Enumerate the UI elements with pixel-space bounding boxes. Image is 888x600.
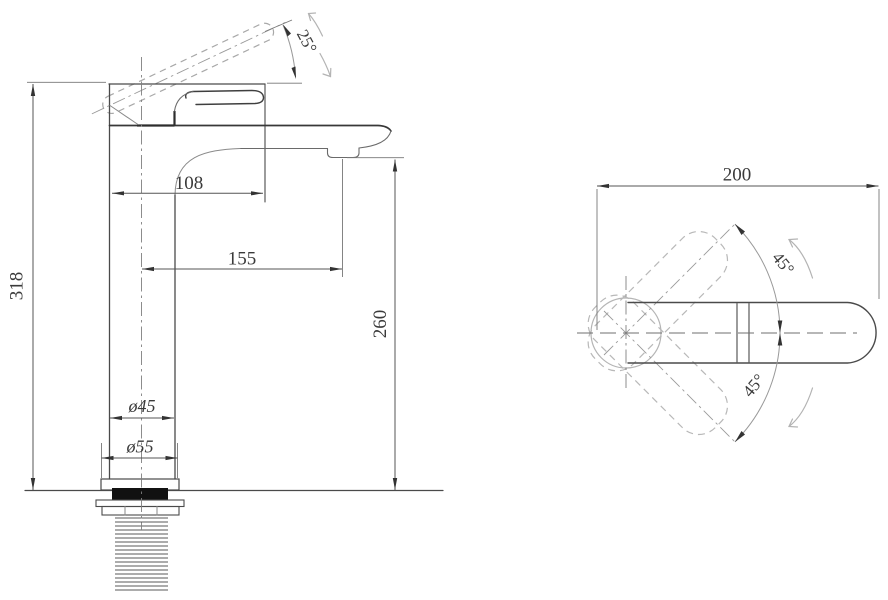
mounting-gasket xyxy=(112,488,168,500)
raised-handle-phantom xyxy=(88,14,289,122)
lock-nut-facets xyxy=(125,507,157,516)
technical-drawing-canvas: 25° 318 108 155 xyxy=(0,0,888,600)
body-diameter-label: ø45 xyxy=(128,396,156,416)
swivel-arrow-mid-lower xyxy=(778,333,783,346)
dim-handle-angle: 25° xyxy=(265,13,331,83)
height-arrow-bottom xyxy=(31,478,35,490)
spout-tip-face xyxy=(359,131,391,148)
reach108-arrow-right xyxy=(251,191,263,195)
spout-reach-label: 155 xyxy=(228,249,257,270)
lock-nut-body xyxy=(102,507,179,516)
height260-arrow-top xyxy=(393,160,397,172)
handle-angle-label: 25° xyxy=(293,26,321,56)
total-height-label: 318 xyxy=(7,272,28,301)
faucet-drawing-svg: 25° 318 108 155 xyxy=(0,0,888,600)
reach155-arrow-left xyxy=(142,267,154,271)
dim-overall-length: 200 xyxy=(597,165,879,331)
aerator xyxy=(328,148,360,158)
base-diameter-label: ø55 xyxy=(126,437,154,457)
angle-arrow-up xyxy=(283,25,291,37)
angle-arrow-down xyxy=(292,67,297,80)
swivel-lower-label: 45° xyxy=(739,370,769,400)
overall-length-label: 200 xyxy=(723,165,752,186)
spout-height-label: 260 xyxy=(370,310,391,339)
angle-ext-top xyxy=(265,20,292,32)
side-view: 25° 318 108 155 xyxy=(7,13,444,590)
dim-spout-height: 260 xyxy=(347,158,404,490)
handle-base-step xyxy=(137,111,175,126)
swivel-arrow-mid-upper xyxy=(778,321,783,334)
lock-nut-flange xyxy=(96,500,184,507)
swivel-direction-curve-down xyxy=(789,388,813,427)
lift-direction-curve-down xyxy=(320,54,331,77)
dim-base-diameter: ø55 xyxy=(102,437,178,479)
dia45-arrow-right xyxy=(162,416,174,420)
dia55-arrow-right xyxy=(166,456,178,460)
spout-top-reach-label: 108 xyxy=(175,173,204,194)
dia55-arrow-left xyxy=(102,456,114,460)
dim-body-diameter: ø45 xyxy=(110,396,174,420)
height260-arrow-bottom xyxy=(393,478,397,490)
swung-axis-lower xyxy=(604,311,736,443)
length200-arrow-left xyxy=(597,184,609,188)
swung-axis-upper xyxy=(604,223,736,355)
height-arrow-top xyxy=(31,84,35,96)
swivel-upper-label: 45° xyxy=(768,248,798,278)
length200-arrow-right xyxy=(867,184,879,188)
dim-total-height: 318 xyxy=(7,82,107,490)
reach155-arrow-right xyxy=(330,267,342,271)
raised-handle-centerline xyxy=(92,22,285,113)
dia45-arrow-left xyxy=(110,416,122,420)
handle-front-curve xyxy=(175,92,194,112)
top-view: 45° 45° 200 xyxy=(577,165,879,445)
reach108-arrow-left xyxy=(112,191,124,195)
dim-spout-reach: 155 xyxy=(142,159,343,277)
handle-lever xyxy=(186,91,264,105)
dim-spout-top-reach: 108 xyxy=(112,173,263,195)
